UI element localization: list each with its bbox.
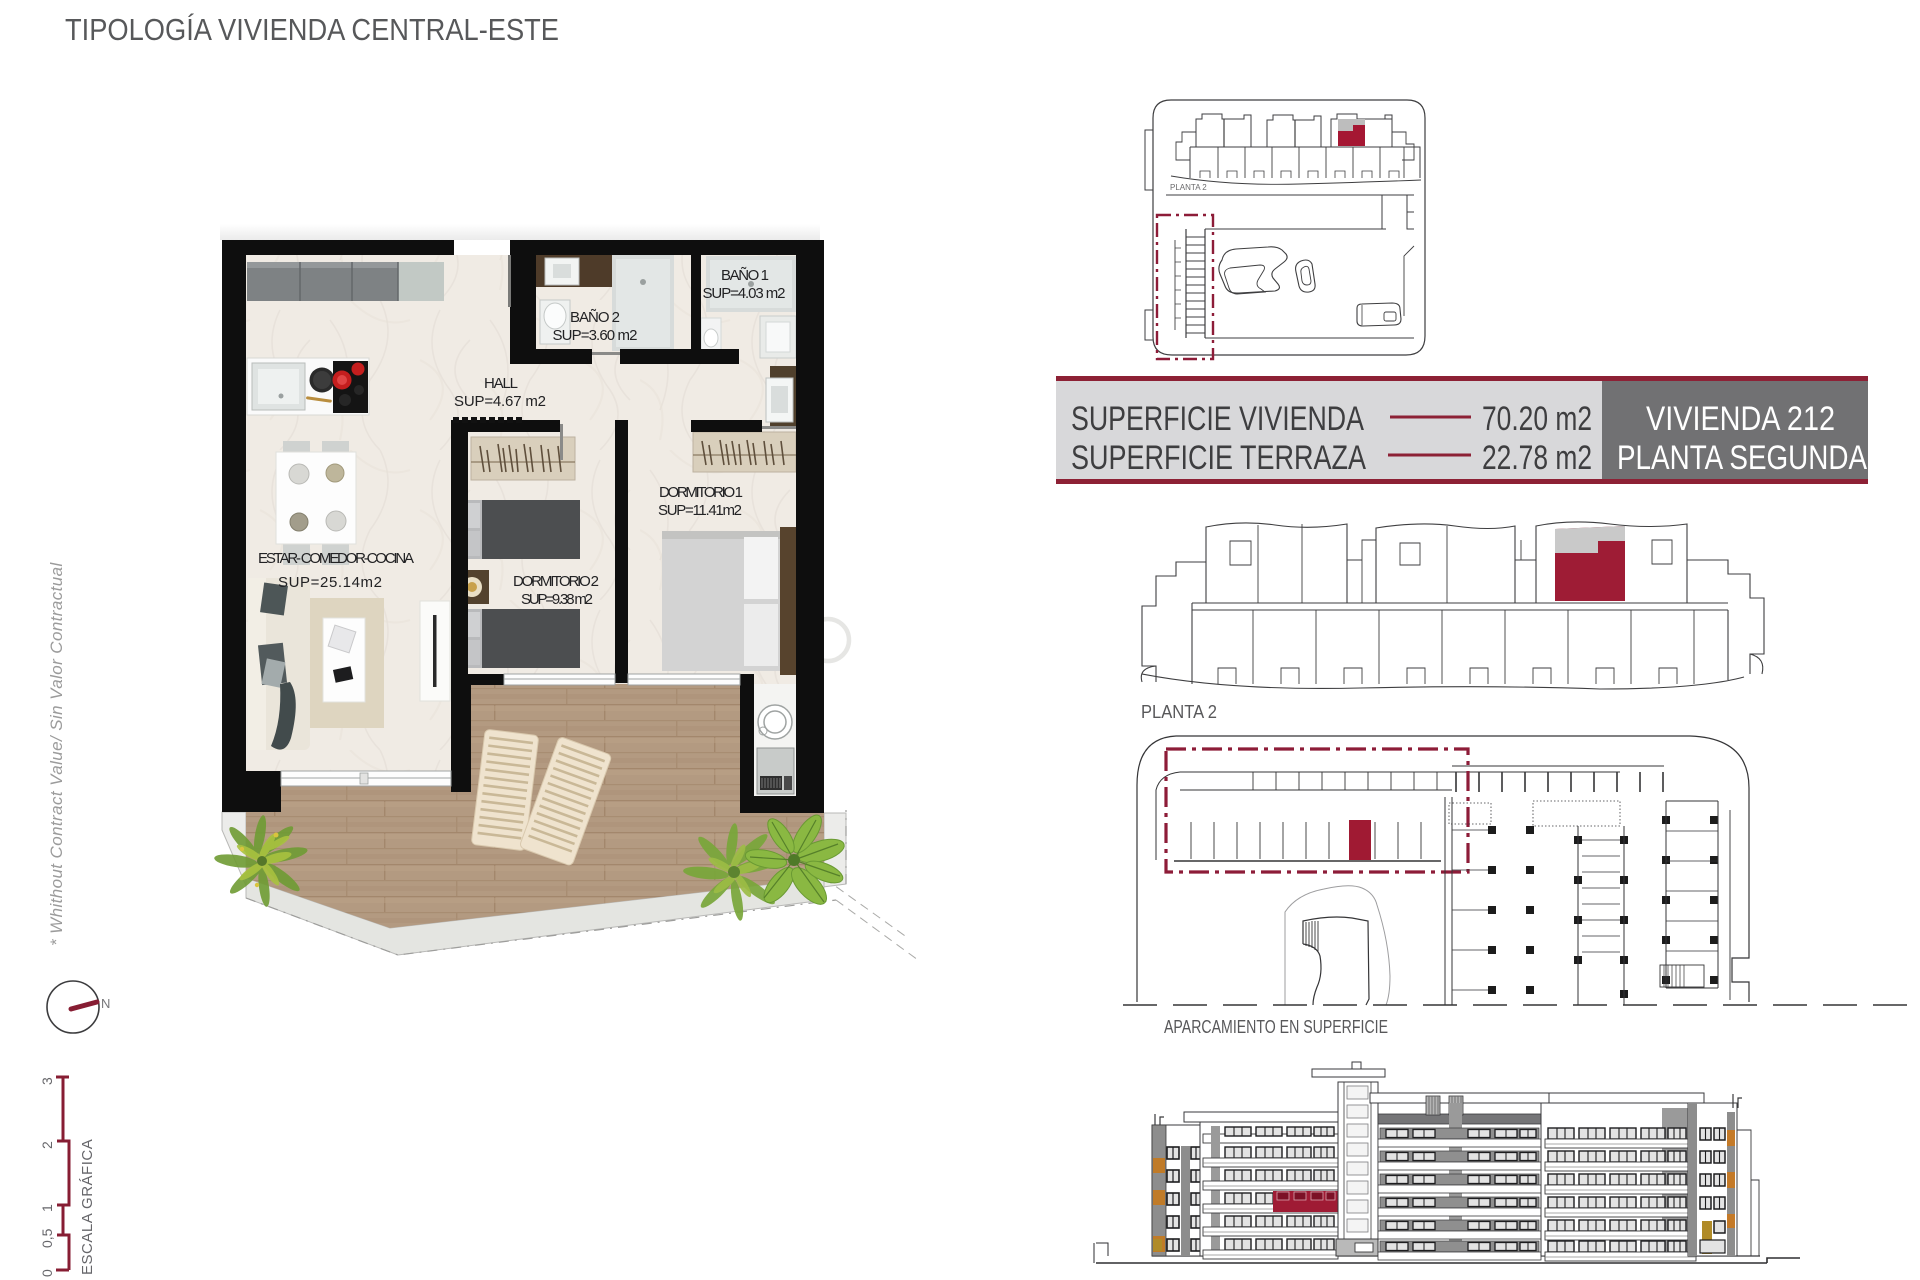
svg-text:22.78 m2: 22.78 m2	[1482, 439, 1592, 477]
svg-text:SUP=4.67 m2: SUP=4.67 m2	[454, 393, 546, 410]
svg-text:70.20 m2: 70.20 m2	[1482, 400, 1592, 438]
svg-text:2: 2	[39, 1141, 55, 1149]
svg-text:SUPERFICIE TERRAZA: SUPERFICIE TERRAZA	[1071, 439, 1366, 477]
svg-text:ESCALA GRÁFICA: ESCALA GRÁFICA	[79, 1139, 96, 1275]
svg-text:PLANTA SEGUNDA: PLANTA SEGUNDA	[1617, 439, 1867, 477]
svg-text:PLANTA 2: PLANTA 2	[1141, 702, 1217, 722]
svg-text:0: 0	[39, 1269, 55, 1277]
svg-text:DORMITORIO 2: DORMITORIO 2	[513, 573, 599, 590]
svg-text:BAÑO 2: BAÑO 2	[570, 309, 620, 326]
svg-text:TIPOLOGÍA VIVIENDA CENTRAL-EST: TIPOLOGÍA VIVIENDA CENTRAL-ESTE	[65, 12, 559, 47]
svg-text:0,5: 0,5	[39, 1228, 55, 1248]
svg-text:BAÑO 1: BAÑO 1	[721, 267, 769, 284]
svg-text:SUP=3.60 m2: SUP=3.60 m2	[553, 327, 638, 344]
svg-text:1: 1	[39, 1204, 55, 1212]
svg-text:SUP=9.38 m2: SUP=9.38 m2	[521, 591, 593, 608]
svg-text:SUP=11.41m2: SUP=11.41m2	[658, 502, 742, 519]
svg-text:DORMITORIO 1: DORMITORIO 1	[659, 484, 743, 501]
svg-text:N: N	[101, 996, 110, 1011]
svg-text:VIVIENDA 212: VIVIENDA 212	[1646, 400, 1835, 438]
svg-text:SUP=4.03 m2: SUP=4.03 m2	[703, 285, 786, 302]
svg-text:3: 3	[39, 1077, 55, 1085]
svg-text:SUP=25.14m2: SUP=25.14m2	[278, 574, 382, 591]
svg-text:PLANTA 2: PLANTA 2	[1170, 183, 1207, 192]
svg-text:* Whithout Contract Value/ Sin: * Whithout Contract Value/ Sin Valor Con…	[47, 562, 66, 946]
svg-text:SUPERFICIE VIVIENDA: SUPERFICIE VIVIENDA	[1071, 400, 1364, 438]
svg-text:ESTAR- COMEDOR-COCINA: ESTAR- COMEDOR-COCINA	[258, 550, 414, 567]
svg-text:HALL: HALL	[484, 375, 518, 392]
svg-text:APARCAMIENTO EN SUPERFICIE: APARCAMIENTO EN SUPERFICIE	[1164, 1017, 1388, 1037]
